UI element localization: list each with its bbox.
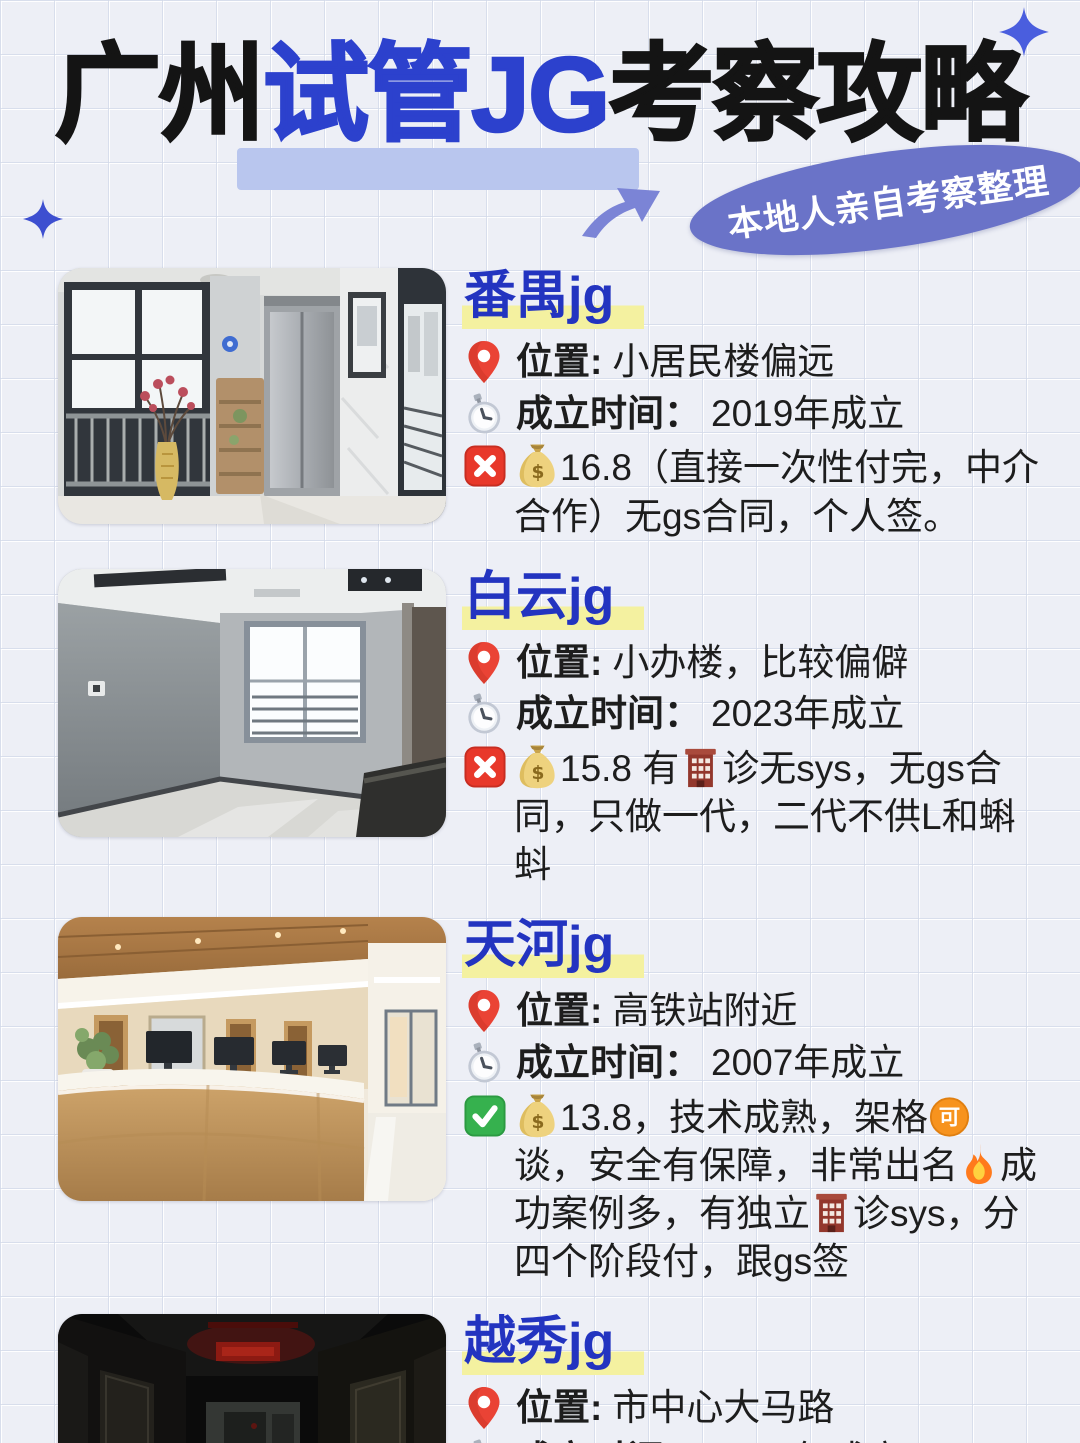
svg-text:可: 可 <box>939 1105 960 1129</box>
founded-label: 成立时间： <box>516 1042 701 1083</box>
clock-icon <box>464 1040 504 1086</box>
sparkle-icon <box>22 198 64 240</box>
review-line: $15.8 有诊无sys，无gs合同，只做一代，二代不供L和蝌蚪 <box>464 743 1040 889</box>
founded-label: 成立时间： <box>516 1439 701 1443</box>
section-content: 番禺jg 位置:小居民楼偏远 成立时间：2019年成立 $16.8（直接一次性付… <box>464 268 1040 541</box>
location-value: 高铁站附近 <box>612 990 797 1031</box>
svg-text:$: $ <box>532 463 545 484</box>
building-icon <box>680 747 721 789</box>
review-text: $15.8 有诊无sys，无gs合同，只做一代，二代不供L和蝌蚪 <box>514 748 1016 885</box>
arrow-icon <box>578 180 664 242</box>
clock-icon <box>464 691 504 737</box>
section-title: 番禺jg <box>464 268 1040 325</box>
fire-icon <box>959 1142 999 1186</box>
section-content: 天河jg 位置:高铁站附近 成立时间：2007年成立 $13.8，技术成熟，架格… <box>464 917 1040 1286</box>
photo-reception-hall <box>58 917 446 1201</box>
svg-text:$: $ <box>532 763 545 784</box>
section-panyu: 番禺jg 位置:小居民楼偏远 成立时间：2019年成立 $16.8（直接一次性付… <box>58 268 1040 541</box>
location-line: 位置:小居民楼偏远 <box>464 339 1040 386</box>
photo-elevator-lobby <box>58 268 446 524</box>
section-yuexiu: 越秀jg 位置:市中心大马路 成立时间：2008年成立 $14.8，无gs合同，… <box>58 1314 1040 1443</box>
founded-line: 成立时间：2023年成立 <box>464 691 1040 738</box>
section-title: 越秀jg <box>464 1314 1040 1371</box>
location-label: 位置: <box>516 990 602 1031</box>
location-label: 位置: <box>516 341 602 382</box>
location-line: 位置:小办楼，比较偏僻 <box>464 640 1040 687</box>
building-icon <box>811 1192 852 1234</box>
founded-value: 2019年成立 <box>711 393 904 434</box>
cross-icon <box>464 746 506 788</box>
location-pin-icon <box>464 339 504 385</box>
title-part-3: 考察攻略 <box>608 36 1024 154</box>
founded-value: 2023年成立 <box>711 693 904 734</box>
founded-label: 成立时间： <box>516 393 701 434</box>
location-value: 市中心大马路 <box>612 1387 834 1428</box>
location-label: 位置: <box>516 1387 602 1428</box>
poster-header: 广州试管JG考察攻略 本地人亲自考察整理 <box>0 0 1080 268</box>
founded-value: 2008年成立 <box>711 1439 904 1443</box>
location-pin-icon <box>464 988 504 1034</box>
review-text: $13.8，技术成熟，架格可谈，安全有保障，非常出名成功案例多，有独立诊sys，… <box>514 1097 1037 1282</box>
check-icon <box>464 1095 506 1137</box>
title-part-1: 广州 <box>55 36 263 154</box>
section-title: 天河jg <box>464 917 1040 974</box>
location-value: 小办楼，比较偏僻 <box>612 642 908 683</box>
photo-dark-corridor <box>58 1314 446 1443</box>
sections-list: 番禺jg 位置:小居民楼偏远 成立时间：2019年成立 $16.8（直接一次性付… <box>0 268 1080 1443</box>
location-label: 位置: <box>516 642 602 683</box>
location-pin-icon <box>464 1385 504 1431</box>
section-title: 白云jg <box>464 569 1040 626</box>
section-content: 白云jg 位置:小办楼，比较偏僻 成立时间：2023年成立 $15.8 有诊无s… <box>464 569 1040 890</box>
location-value: 小居民楼偏远 <box>612 341 834 382</box>
location-line: 位置:高铁站附近 <box>464 988 1040 1035</box>
clock-icon <box>464 1437 504 1443</box>
money-bag-icon: $ <box>515 743 559 790</box>
svg-text:$: $ <box>532 1112 545 1133</box>
photo-empty-office <box>58 569 446 837</box>
location-pin-icon <box>464 640 504 686</box>
founded-line: 成立时间：2007年成立 <box>464 1040 1040 1087</box>
poster: 广州试管JG考察攻略 本地人亲自考察整理 <box>0 0 1080 1443</box>
founded-line: 成立时间：2019年成立 <box>464 391 1040 438</box>
review-line: $13.8，技术成熟，架格可谈，安全有保障，非常出名成功案例多，有独立诊sys，… <box>464 1092 1040 1286</box>
clock-icon <box>464 391 504 437</box>
review-text: $16.8（直接一次性付完，中介合作）无gs合同，个人签。 <box>514 447 1039 536</box>
title-part-2: 试管JG <box>263 36 608 154</box>
founded-line: 成立时间：2008年成立 <box>464 1437 1040 1443</box>
section-tianhe: 天河jg 位置:高铁站附近 成立时间：2007年成立 $13.8，技术成熟，架格… <box>58 917 1040 1286</box>
ke-button-icon: 可 <box>929 1096 970 1138</box>
cross-icon <box>464 445 506 487</box>
founded-label: 成立时间： <box>516 693 701 734</box>
section-baiyun: 白云jg 位置:小办楼，比较偏僻 成立时间：2023年成立 $15.8 有诊无s… <box>58 569 1040 890</box>
section-content: 越秀jg 位置:市中心大马路 成立时间：2008年成立 $14.8，无gs合同，… <box>464 1314 1040 1443</box>
review-line: $16.8（直接一次性付完，中介合作）无gs合同，个人签。 <box>464 442 1040 540</box>
founded-value: 2007年成立 <box>711 1042 904 1083</box>
location-line: 位置:市中心大马路 <box>464 1385 1040 1432</box>
money-bag-icon: $ <box>515 442 559 489</box>
money-bag-icon: $ <box>515 1092 559 1139</box>
